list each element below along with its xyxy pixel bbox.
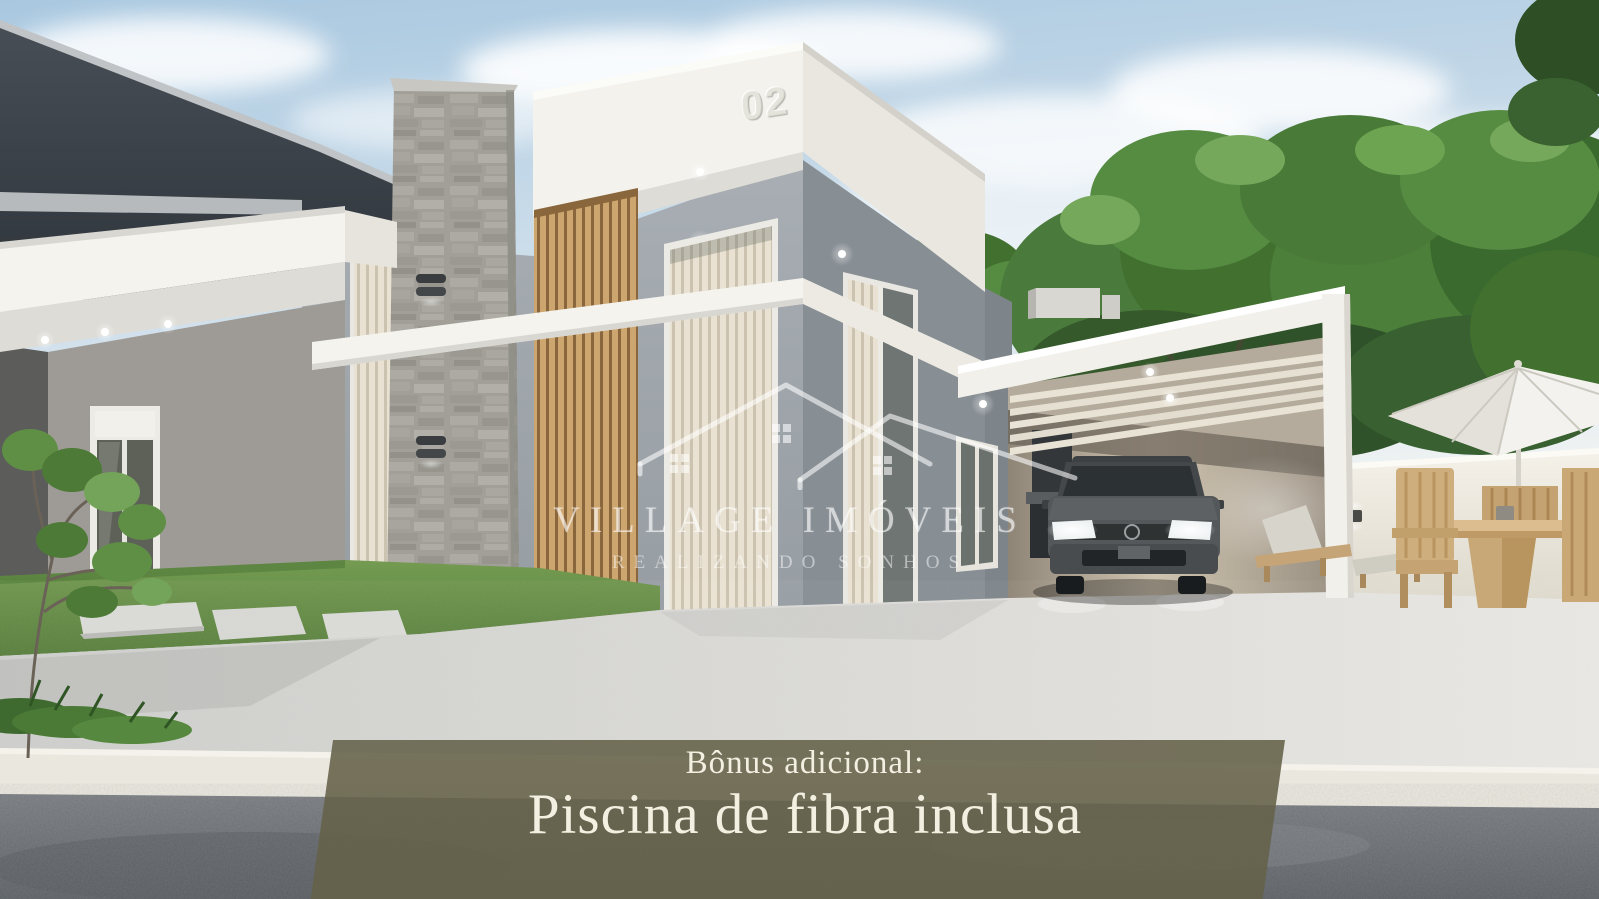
dining-chair	[1562, 468, 1599, 602]
side-door	[956, 436, 998, 572]
property-marketing-image: Bônus adicional: Piscina de fibra inclus…	[0, 0, 1599, 899]
wall-sconce-icon	[416, 436, 446, 469]
banner-subtitle: Piscina de fibra inclusa	[349, 784, 1261, 846]
unit-number: 02	[739, 78, 791, 131]
promo-banner-text: Bônus adicional: Piscina de fibra inclus…	[349, 743, 1261, 846]
banner-title: Bônus adicional:	[349, 743, 1261, 784]
wall-sconce-icon	[416, 274, 446, 307]
